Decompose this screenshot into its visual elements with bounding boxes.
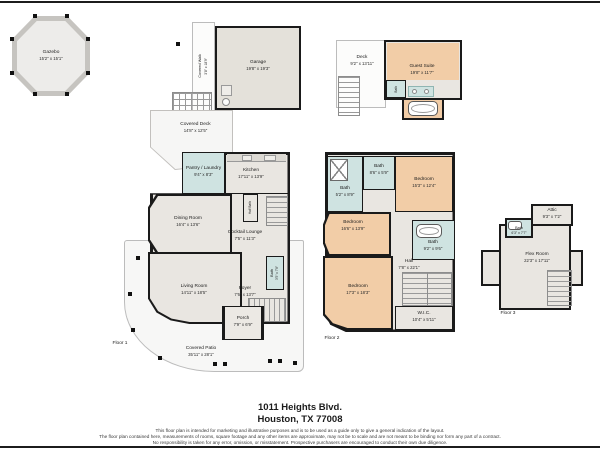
room-bedroom-left <box>323 212 391 256</box>
stove-icon <box>264 155 276 161</box>
porch-dims: 7'9" x 6'9" <box>222 322 264 328</box>
shower-icon <box>330 159 348 181</box>
patio-post-dot <box>158 356 162 360</box>
attic-dims: 9'3" x 7'2" <box>531 214 573 220</box>
wic-label: W.I.C. 10'4" x 5'11" <box>402 311 446 323</box>
stairs-floor1-rear <box>266 196 288 226</box>
deck-name: Deck <box>357 55 368 60</box>
gazebo-name: Gazebo <box>43 50 60 55</box>
garage-dims: 19'8" x 19'3" <box>228 66 288 72</box>
dining-name: Dining Room <box>174 216 202 221</box>
cocktail-lounge-name: Cocktail Lounge <box>228 230 262 235</box>
living-name: Living Room <box>181 284 208 289</box>
covered-walk-label: Covered Walk 3'8" x 18'9" <box>193 34 214 98</box>
sink-icon <box>242 155 252 161</box>
attic-label: Attic 9'3" x 7'2" <box>531 208 573 220</box>
half-bath-label: Half Bath <box>243 196 258 220</box>
bath-front-label: Bath 5'2" x 8'9" <box>330 186 360 198</box>
sink-icon <box>424 89 429 94</box>
patio-post-dot <box>131 328 135 332</box>
half-bath-name: Half Bath <box>248 201 252 214</box>
floor-plan-page: Gazebo 15'2" x 15'1" Covered Walk 3'8" x… <box>0 0 600 450</box>
bath-floor3-dims: 6'3" x 7'7" <box>505 231 533 236</box>
kitchen-dims: 17'11" x 13'9" <box>226 174 276 180</box>
covered-walk-dims: 3'8" x 18'9" <box>204 58 209 75</box>
hall-name: Hall <box>405 259 413 264</box>
bath-primary-label: Bath 9'2" x 9'6" <box>415 240 451 252</box>
disclaimer-line2: The floor plan contained here, measureme… <box>0 434 600 439</box>
deck-dims: 9'2" x 13'11" <box>340 61 384 67</box>
bath-primary-dims: 9'2" x 9'6" <box>415 246 451 252</box>
cocktail-lounge-dims: 7'5" x 11'3" <box>222 236 268 242</box>
covered-deck-label: Covered Deck 14'8" x 12'5" <box>168 122 223 134</box>
utility-box-icon <box>221 85 232 96</box>
stairs-divider <box>427 273 428 307</box>
bedroom-left-name: Bedroom <box>343 220 362 225</box>
bedroom-primary-label: Bedroom 17'3" x 18'3" <box>334 284 382 296</box>
bath-floor3-label: Bath 6'3" x 7'7" <box>505 226 533 235</box>
foyer-label: Foyer 7'6" x 13'7" <box>226 286 264 298</box>
covered-deck-name: Covered Deck <box>180 122 210 127</box>
flex-label: Flex Room 22'3" x 17'11" <box>512 252 562 264</box>
gazebo-post-dot <box>33 14 37 18</box>
guest-suite-label: Guest Suite 19'8" x 11'7" <box>396 64 448 76</box>
living-dims: 14'11" x 18'5" <box>170 290 218 296</box>
foyer-dims: 7'6" x 13'7" <box>226 292 264 298</box>
guest-suite-dims: 19'8" x 11'7" <box>396 70 448 76</box>
bedroom-left-label: Bedroom 16'6" x 13'9" <box>330 220 376 232</box>
gazebo-dims: 15'2" x 15'1" <box>26 56 76 62</box>
patio-post-dot <box>293 361 297 365</box>
sink-icon <box>412 89 417 94</box>
bedroom-front-label: Bedroom 15'3" x 12'4" <box>399 177 449 189</box>
exterior-steps <box>172 92 212 112</box>
covered-patio-name: Covered Patio <box>186 346 216 351</box>
guest-bath-label: Bath <box>386 81 406 97</box>
gazebo-post-dot <box>86 71 90 75</box>
address-line2: Houston, TX 77008 <box>0 414 600 425</box>
gazebo-post-dot <box>65 14 69 18</box>
patio-post-dot <box>128 292 132 296</box>
guest-bath-vanity <box>408 86 434 97</box>
bathtub-basin <box>419 227 439 235</box>
patio-post-dot <box>136 256 140 260</box>
garage-name: Garage <box>250 60 266 65</box>
gazebo-post-dot <box>10 37 14 41</box>
guest-bath-name: Bath <box>394 86 398 93</box>
flex-name: Flex Room <box>525 252 548 257</box>
stairs-deck <box>338 76 360 116</box>
floor1-label: Floor 1 <box>100 341 140 346</box>
bath-floor3-name: Bath <box>515 226 523 230</box>
covered-deck-dims: 14'8" x 12'5" <box>168 128 223 134</box>
kitchen-name: Kitchen <box>243 168 259 173</box>
living-label: Living Room 14'11" x 18'5" <box>170 284 218 296</box>
patio-post-dot <box>278 359 282 363</box>
bathtub-icon <box>408 101 438 116</box>
deck-label: Deck 9'2" x 13'11" <box>340 55 384 67</box>
gazebo-post-dot <box>65 92 69 96</box>
patio-post-dot <box>213 362 217 366</box>
pantry-laundry-name: Pantry / Laundry <box>186 166 221 171</box>
disclaimer-line1: This floor plan is intended for marketin… <box>0 428 600 433</box>
kitchen-counter <box>227 154 286 162</box>
wic-dims: 10'4" x 5'11" <box>402 317 446 323</box>
patio-post-dot <box>268 359 272 363</box>
bedroom-front-name: Bedroom <box>414 177 433 182</box>
bath-floor1-label: Bath 3'5" x 7'8" <box>266 258 284 288</box>
bedroom-primary-name: Bedroom <box>348 284 367 289</box>
foyer-name: Foyer <box>239 286 251 291</box>
pantry-laundry-label: Pantry / Laundry 9'4" x 8'3" <box>183 166 224 178</box>
post-dot <box>176 42 180 46</box>
stairs-floor2 <box>402 272 452 306</box>
stairs-floor3 <box>547 270 572 306</box>
gazebo-post-dot <box>10 71 14 75</box>
dining-label: Dining Room 16'4" x 13'6" <box>165 216 211 228</box>
guest-suite-name: Guest Suite <box>409 64 434 69</box>
bath-mid-label: Bath 8'6" x 5'9" <box>363 164 395 176</box>
cocktail-lounge-label: Cocktail Lounge 7'5" x 11'3" <box>222 230 268 242</box>
bath-primary-name: Bath <box>428 240 438 245</box>
garage-label: Garage 19'8" x 19'3" <box>228 60 288 72</box>
hall-dims: 7'8" x 22'1" <box>392 265 426 271</box>
bath-floor1-dims: 3'5" x 7'8" <box>275 266 279 280</box>
bedroom-front-dims: 15'3" x 12'4" <box>399 183 449 189</box>
bath-front-name: Bath <box>340 186 350 191</box>
kitchen-label: Kitchen 17'11" x 13'9" <box>226 168 276 180</box>
covered-patio-label: Covered Patio 35'11" x 28'1" <box>176 346 226 358</box>
bottom-border-line <box>0 446 600 448</box>
pantry-laundry-dims: 9'4" x 8'3" <box>183 172 224 178</box>
covered-patio-dims: 35'11" x 28'1" <box>176 352 226 358</box>
patio-post-dot <box>223 362 227 366</box>
porch-label: Porch 7'9" x 6'9" <box>222 316 264 328</box>
bath-mid-dims: 8'6" x 5'9" <box>363 170 395 176</box>
top-border-line <box>0 1 600 3</box>
bedroom-left-dims: 16'6" x 13'9" <box>330 226 376 232</box>
gazebo-label: Gazebo 15'2" x 15'1" <box>26 50 76 62</box>
bath-front-dims: 5'2" x 8'9" <box>330 192 360 198</box>
bathtub-basin <box>411 104 435 113</box>
bedroom-primary-dims: 17'3" x 18'3" <box>334 290 382 296</box>
attic-name: Attic <box>547 208 556 213</box>
gazebo-post-dot <box>86 37 90 41</box>
bathtub-icon <box>416 224 442 238</box>
dining-dims: 16'4" x 13'6" <box>165 222 211 228</box>
floor2-label: Floor 2 <box>312 336 352 341</box>
wic-name: W.I.C. <box>417 311 430 316</box>
porch-name: Porch <box>237 316 250 321</box>
disclaimer-line3: No responsibility is taken for any error… <box>0 440 600 445</box>
flex-dims: 22'3" x 17'11" <box>512 258 562 264</box>
gazebo-post-dot <box>33 92 37 96</box>
floor3-label: Floor 3 <box>488 311 528 316</box>
hall-label: Hall 7'8" x 22'1" <box>392 259 426 271</box>
water-heater-icon <box>222 98 230 106</box>
address-line1: 1011 Heights Blvd. <box>0 402 600 413</box>
bath-mid-name: Bath <box>374 164 384 169</box>
covered-walk-name: Covered Walk <box>198 54 203 78</box>
